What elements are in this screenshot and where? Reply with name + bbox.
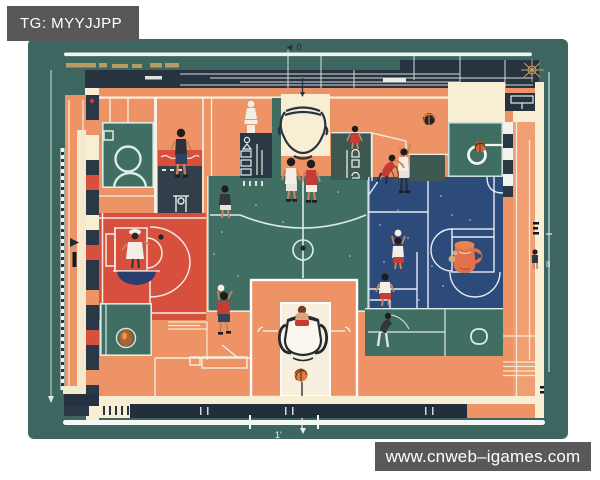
svg-text:8: 8 <box>546 260 551 269</box>
svg-text:◄ 0: ◄ 0 <box>285 42 301 52</box>
svg-text:1': 1' <box>275 430 282 440</box>
